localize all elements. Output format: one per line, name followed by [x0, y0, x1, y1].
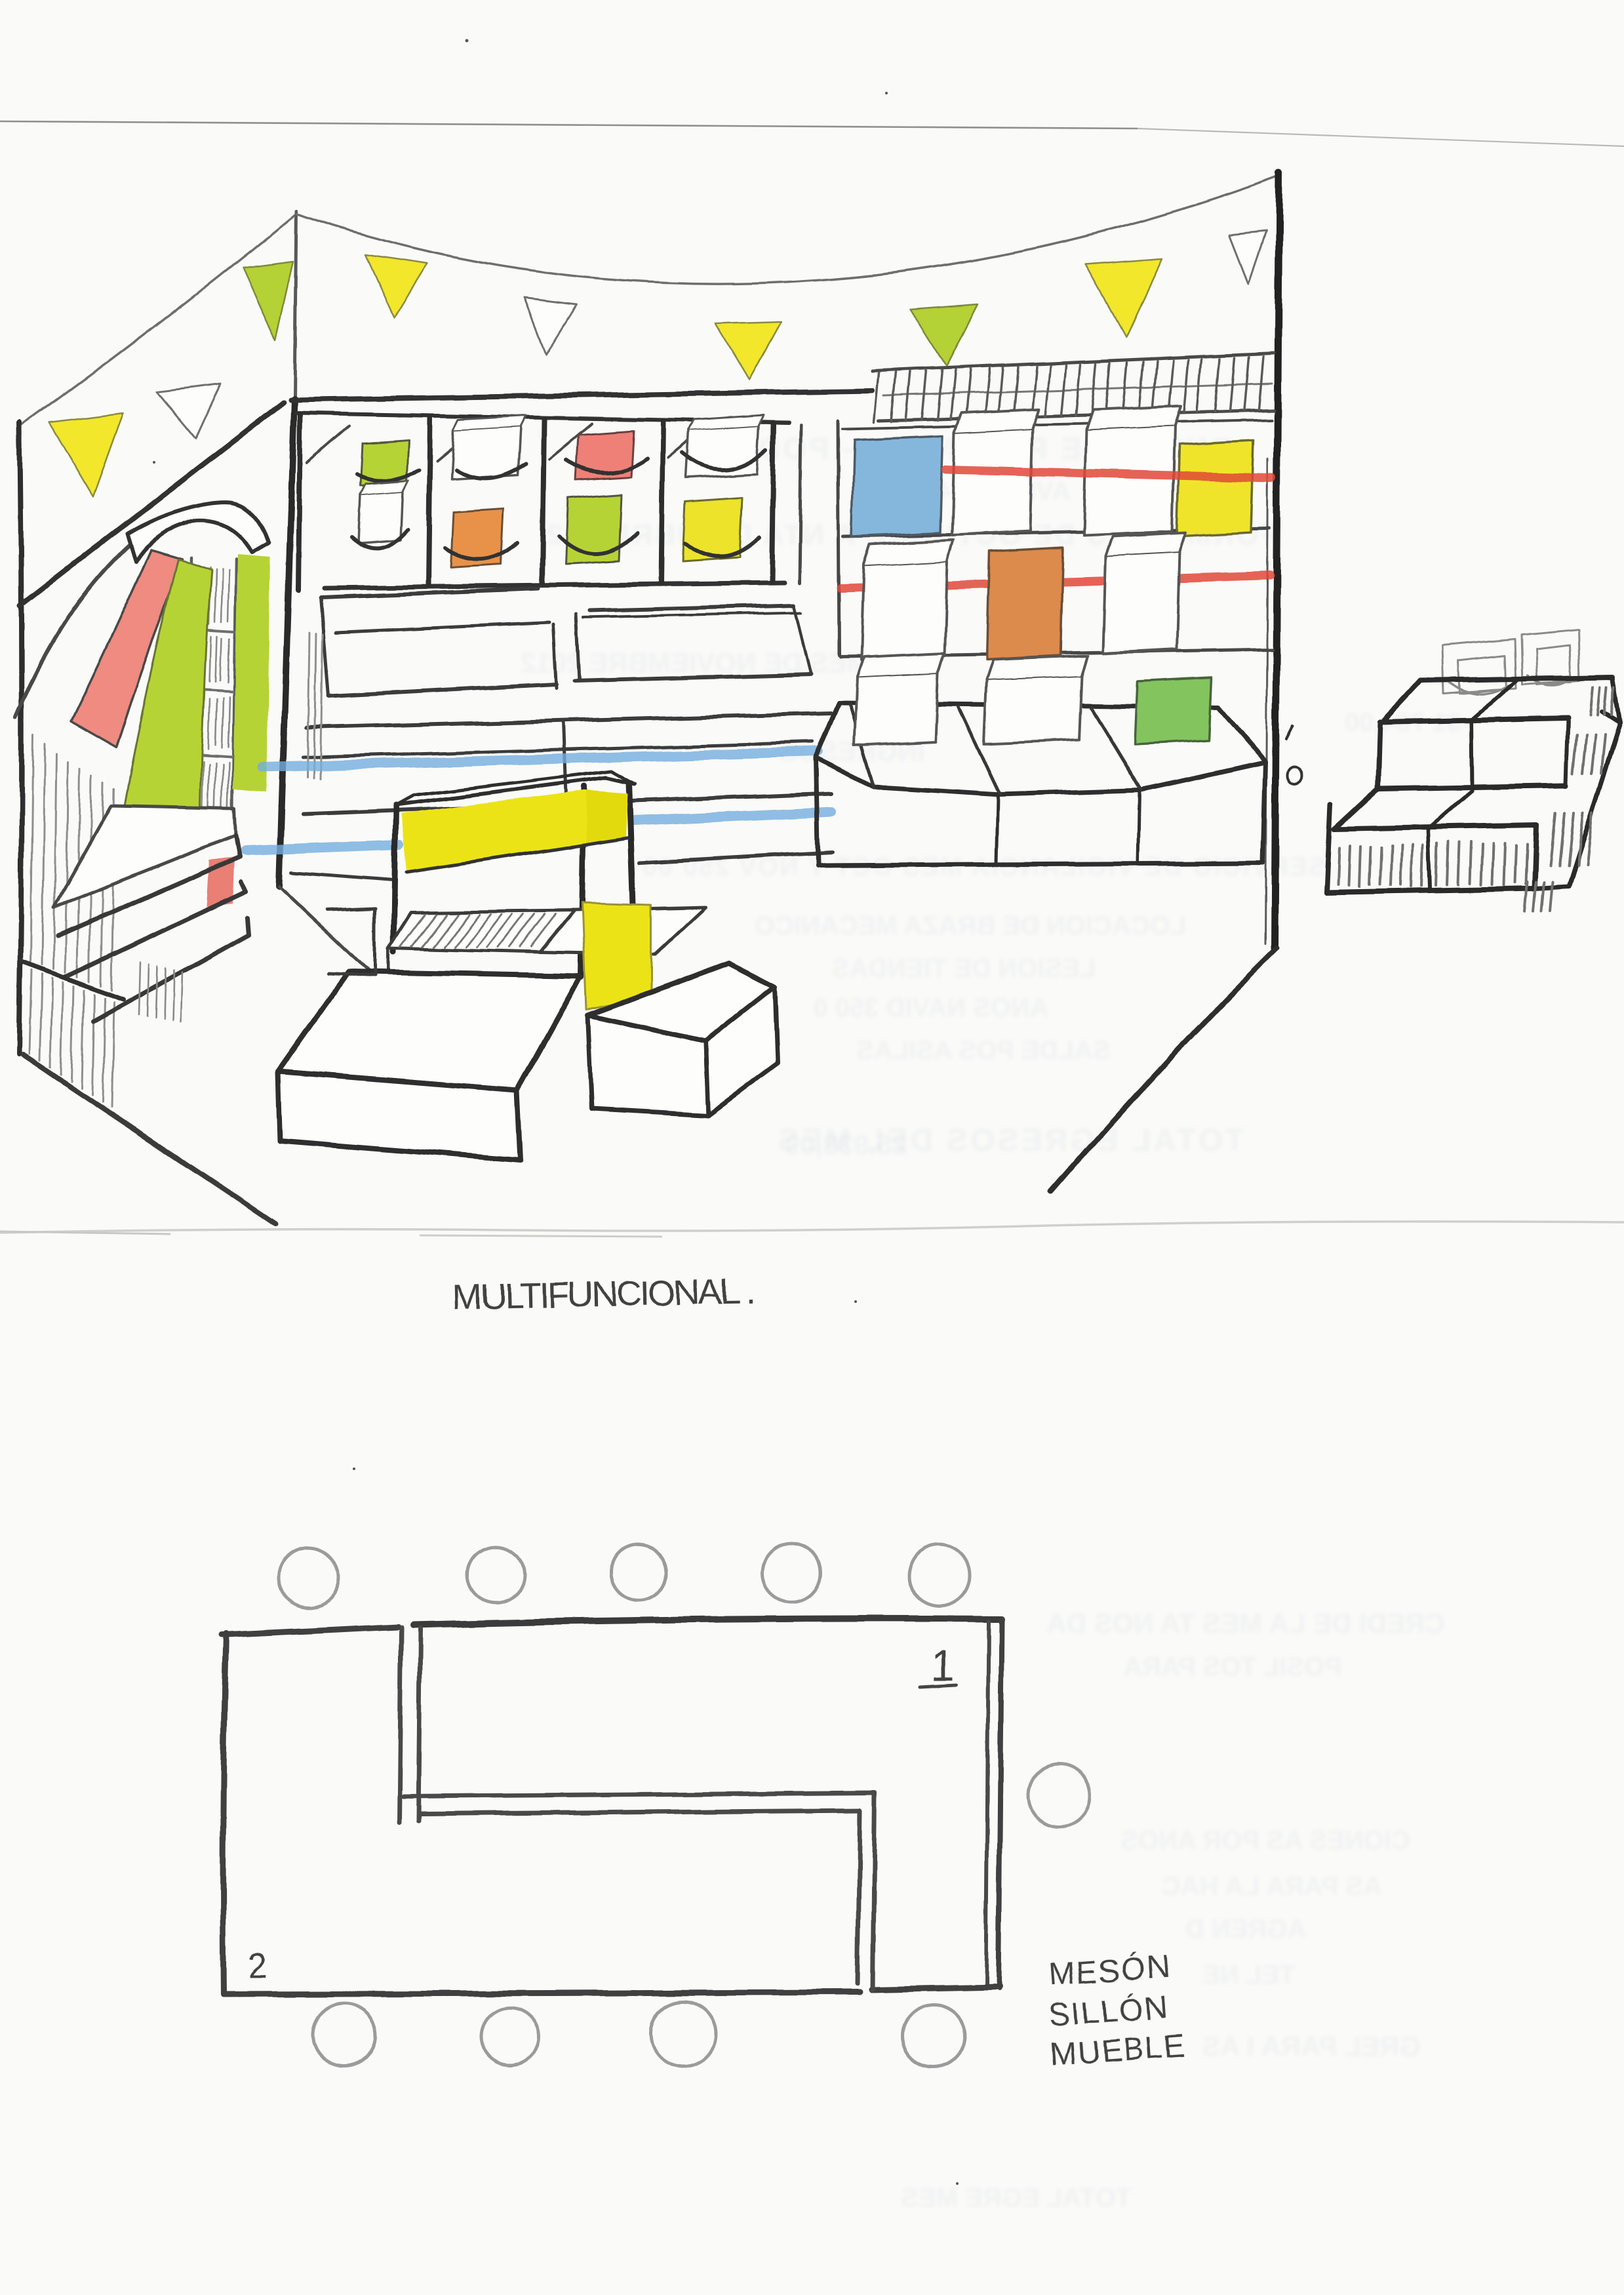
- svg-text:MES DE NOVIEMBRE 2012: MES DE NOVIEMBRE 2012: [521, 647, 869, 678]
- svg-text:CIONES AS POR ANOS: CIONES AS POR ANOS: [1120, 1826, 1410, 1855]
- svg-text:1: 1: [931, 1642, 955, 1689]
- svg-text:CREDI DE LA MES TA NOS DA: CREDI DE LA MES TA NOS DA: [1046, 1608, 1444, 1639]
- svg-text:TOTAL EGRE MES: TOTAL EGRE MES: [901, 2184, 1131, 2212]
- svg-text:AGREN D: AGREN D: [1185, 1915, 1306, 1944]
- svg-text:AS PARA LA HAC: AS PARA LA HAC: [1162, 1872, 1382, 1901]
- svg-text:POSIL TOS PARA: POSIL TOS PARA: [1123, 1652, 1341, 1681]
- svg-text:LOCACION DE BRAZA MECANICO: LOCACION DE BRAZA MECANICO: [755, 911, 1187, 940]
- svg-text:TEL NE: TEL NE: [1202, 1961, 1296, 1989]
- svg-text:ANOS NAVID 350 0: ANOS NAVID 350 0: [813, 993, 1048, 1022]
- svg-text:MULTIFUNCIONAL .: MULTIFUNCIONAL .: [452, 1270, 753, 1317]
- svg-text:2: 2: [248, 1947, 267, 1986]
- svg-text:LESION DE TIENDAS: LESION DE TIENDAS: [832, 954, 1096, 983]
- svg-text:GREL PARA I AS: GREL PARA I AS: [1202, 2031, 1421, 2062]
- svg-text:SALDE POS ASILAS: SALDE POS ASILAS: [856, 1036, 1110, 1065]
- svg-text:25.938,09: 25.938,09: [785, 1129, 907, 1160]
